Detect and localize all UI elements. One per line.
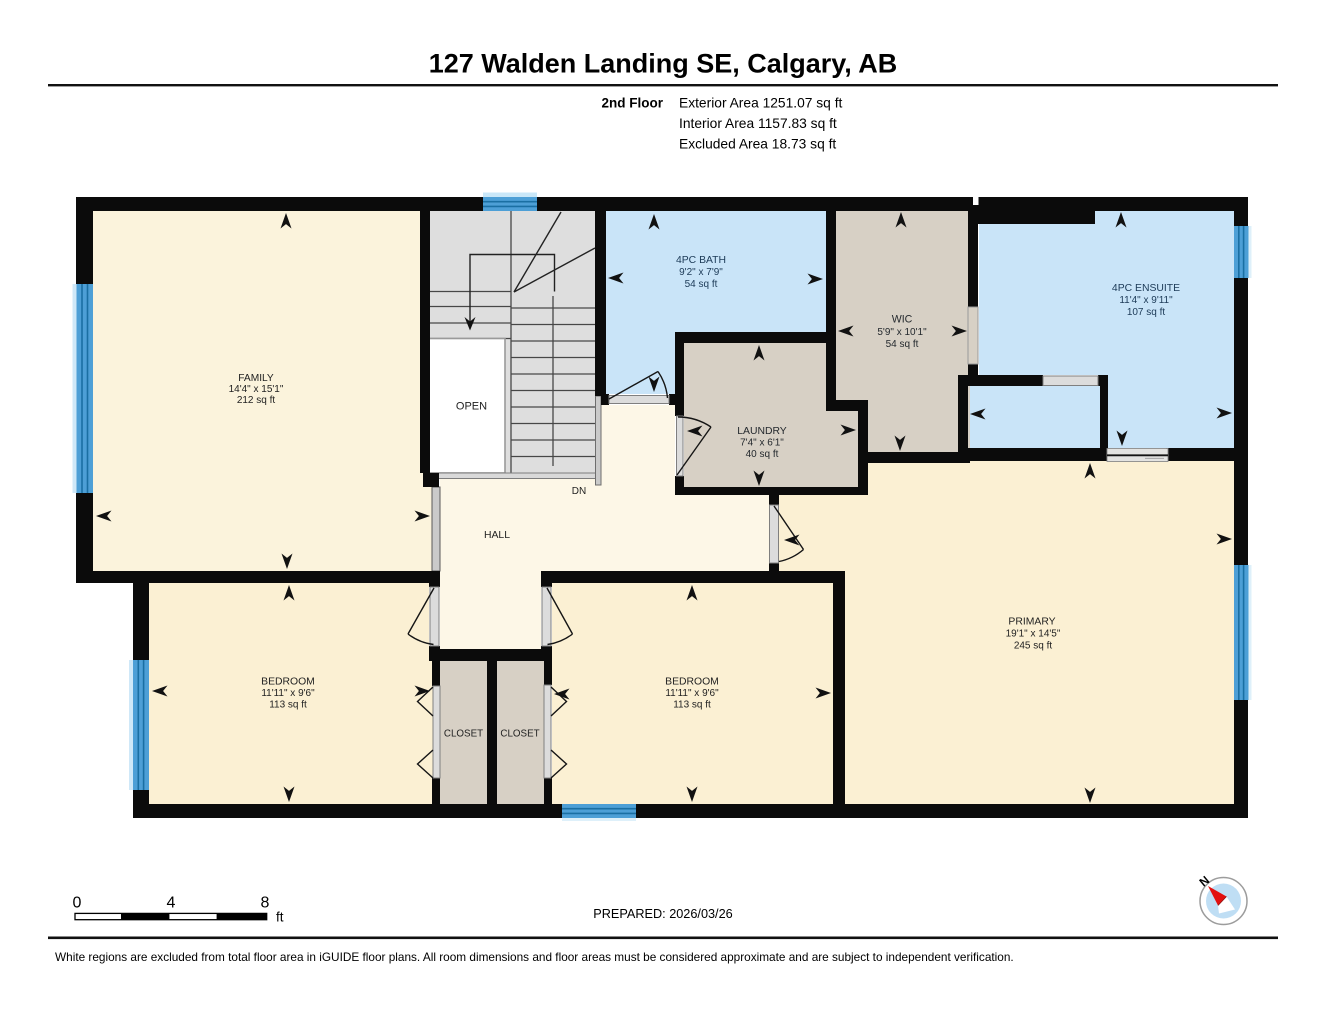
svg-text:FAMILY: FAMILY bbox=[238, 373, 274, 384]
svg-text:BEDROOM: BEDROOM bbox=[261, 677, 315, 688]
svg-text:CLOSET: CLOSET bbox=[444, 729, 483, 740]
svg-text:HALL: HALL bbox=[484, 530, 510, 541]
svg-text:White regions are excluded fro: White regions are excluded from total fl… bbox=[55, 950, 1014, 964]
svg-text:11'11" x 9'6": 11'11" x 9'6" bbox=[261, 688, 315, 699]
svg-text:5'9" x 10'1": 5'9" x 10'1" bbox=[877, 327, 927, 338]
svg-text:127 Walden Landing SE, Calgary: 127 Walden Landing SE, Calgary, AB bbox=[429, 49, 898, 79]
svg-text:WIC: WIC bbox=[892, 314, 913, 326]
svg-text:14'4" x 15'1": 14'4" x 15'1" bbox=[229, 384, 284, 395]
svg-text:8: 8 bbox=[261, 895, 270, 912]
svg-text:Excluded Area 18.73 sq ft: Excluded Area 18.73 sq ft bbox=[679, 137, 836, 152]
svg-text:Exterior Area 1251.07 sq ft: Exterior Area 1251.07 sq ft bbox=[679, 96, 843, 111]
svg-text:PRIMARY: PRIMARY bbox=[1008, 617, 1055, 628]
svg-text:19'1" x 14'5": 19'1" x 14'5" bbox=[1006, 629, 1061, 640]
svg-text:113 sq ft: 113 sq ft bbox=[673, 700, 711, 711]
svg-text:113 sq ft: 113 sq ft bbox=[269, 700, 307, 711]
svg-text:0: 0 bbox=[73, 895, 82, 912]
svg-text:245 sq ft: 245 sq ft bbox=[1014, 641, 1053, 652]
svg-text:4PC BATH: 4PC BATH bbox=[676, 255, 726, 266]
svg-text:CLOSET: CLOSET bbox=[500, 729, 539, 740]
svg-text:OPEN: OPEN bbox=[456, 401, 487, 413]
svg-text:2nd Floor: 2nd Floor bbox=[602, 96, 664, 111]
svg-text:4: 4 bbox=[167, 895, 176, 912]
svg-text:LAUNDRY: LAUNDRY bbox=[737, 426, 787, 437]
svg-text:212 sq ft: 212 sq ft bbox=[237, 395, 276, 406]
svg-text:107 sq ft: 107 sq ft bbox=[1127, 307, 1166, 318]
svg-text:11'4" x 9'11": 11'4" x 9'11" bbox=[1119, 295, 1173, 306]
svg-text:40 sq ft: 40 sq ft bbox=[746, 449, 779, 460]
svg-text:PREPARED: 2026/03/26: PREPARED: 2026/03/26 bbox=[593, 907, 732, 921]
svg-text:54 sq ft: 54 sq ft bbox=[685, 279, 718, 290]
svg-text:11'11" x 9'6": 11'11" x 9'6" bbox=[665, 688, 719, 699]
svg-text:ft: ft bbox=[276, 910, 284, 925]
svg-text:7'4" x 6'1": 7'4" x 6'1" bbox=[740, 438, 784, 449]
svg-text:54 sq ft: 54 sq ft bbox=[886, 339, 919, 350]
svg-text:4PC ENSUITE: 4PC ENSUITE bbox=[1112, 283, 1180, 294]
svg-text:Interior Area 1157.83 sq ft: Interior Area 1157.83 sq ft bbox=[679, 116, 837, 131]
svg-text:BEDROOM: BEDROOM bbox=[665, 677, 719, 688]
svg-text:DN: DN bbox=[572, 486, 586, 497]
svg-text:9'2" x 7'9": 9'2" x 7'9" bbox=[679, 267, 723, 278]
